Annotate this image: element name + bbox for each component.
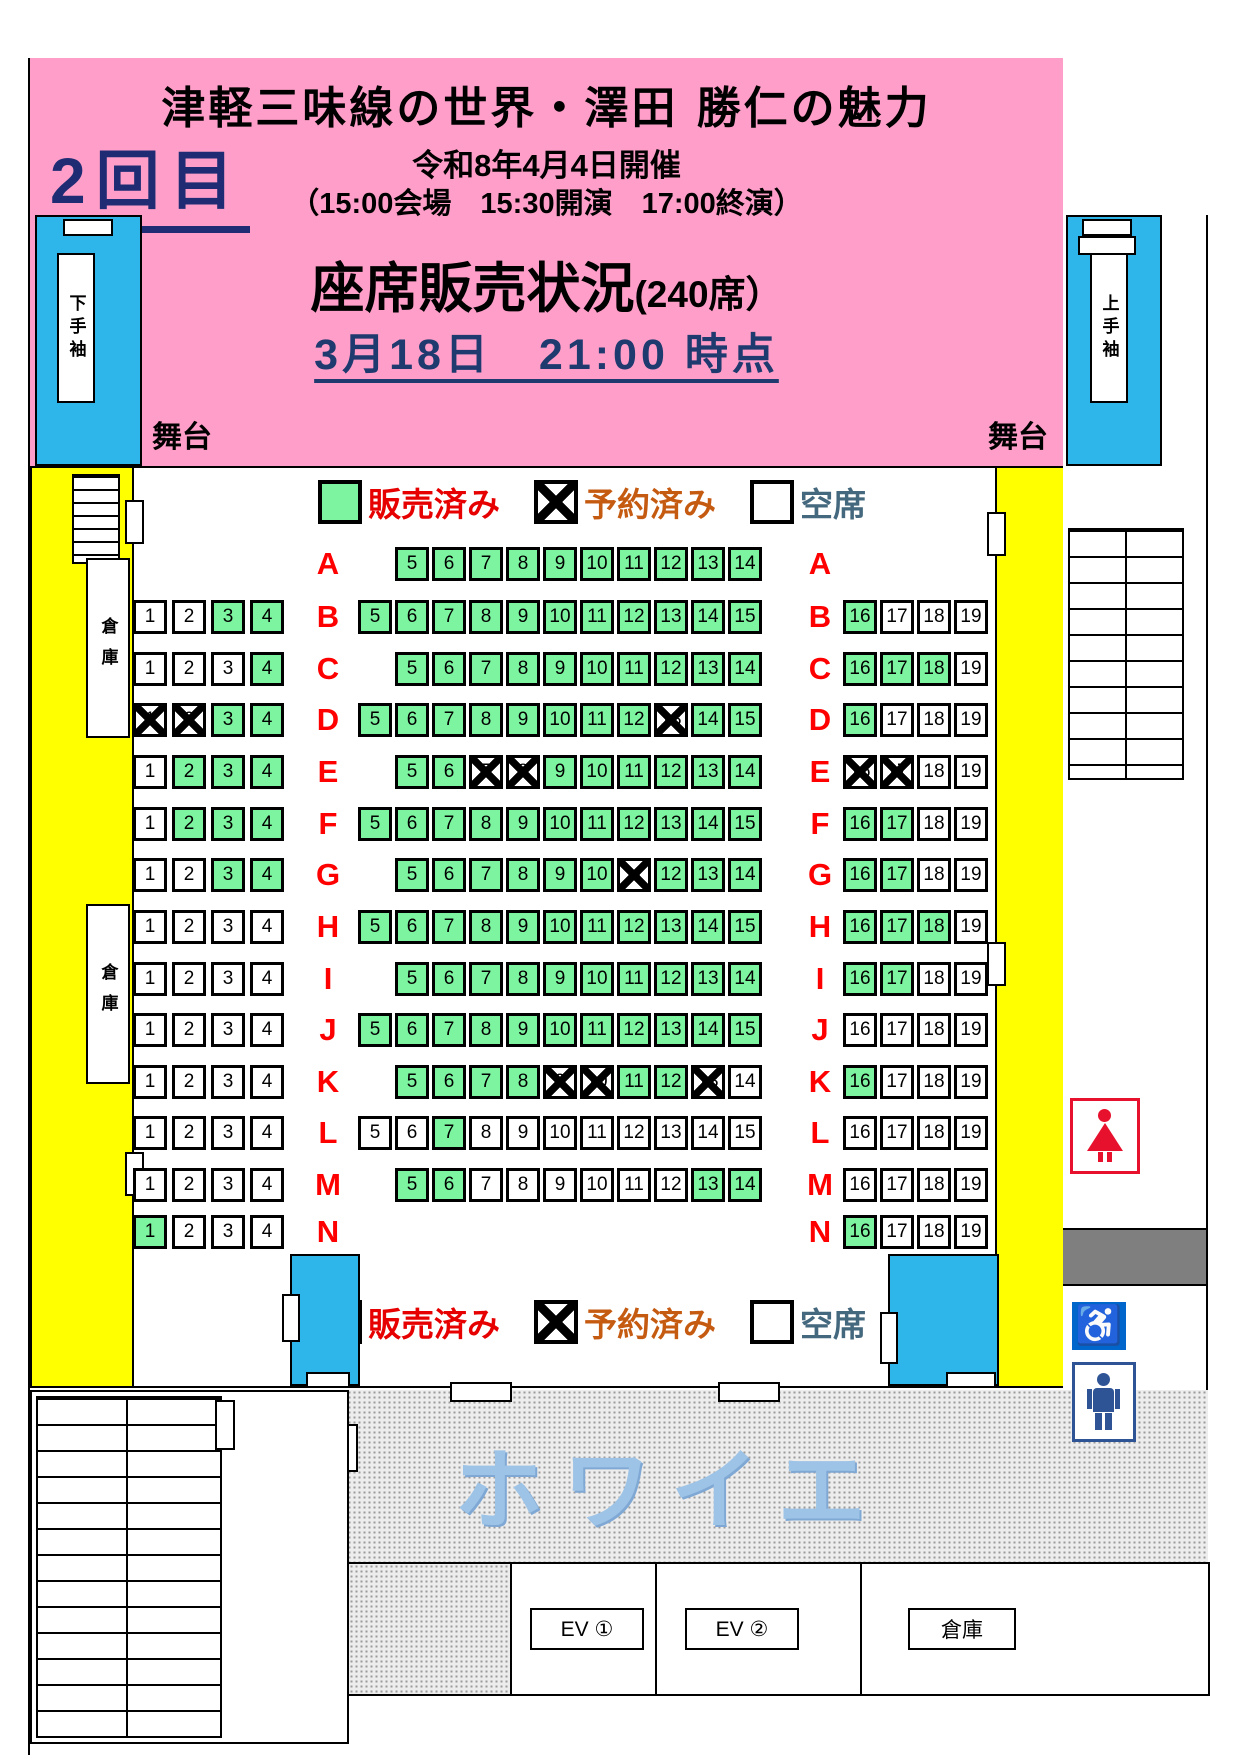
row-letter-H: H [802, 910, 838, 944]
empty-swatch [750, 480, 794, 524]
seat-L12: 12 [617, 1116, 651, 1150]
seat-L19: 19 [954, 1116, 988, 1150]
seat-K12: 12 [654, 1065, 688, 1099]
legend-item-sold: 販売済み [318, 478, 500, 526]
seat-B18: 18 [917, 600, 951, 634]
seat-K13: 13 [691, 1065, 725, 1099]
seat-L16: 16 [843, 1116, 877, 1150]
seat-J12: 12 [617, 1013, 651, 1047]
seat-I14: 14 [728, 962, 762, 996]
seat-N17: 17 [880, 1215, 914, 1249]
seat-K18: 18 [917, 1065, 951, 1099]
seat-C18: 18 [917, 652, 951, 686]
seat-E6: 6 [432, 755, 466, 789]
seat-F13: 13 [654, 807, 688, 841]
seat-J8: 8 [469, 1013, 503, 1047]
seat-H18: 18 [917, 910, 951, 944]
seat-J19: 19 [954, 1013, 988, 1047]
seat-F14: 14 [691, 807, 725, 841]
seat-B14: 14 [691, 600, 725, 634]
seat-L6: 6 [395, 1116, 429, 1150]
seat-F12: 12 [617, 807, 651, 841]
seat-C7: 7 [469, 652, 503, 686]
seat-H7: 7 [432, 910, 466, 944]
row-letter-A: A [802, 547, 838, 581]
row-letter-B: B [802, 600, 838, 634]
stage-label-left: 舞台 [152, 412, 212, 456]
seat-H19: 19 [954, 910, 988, 944]
seat-M8: 8 [506, 1168, 540, 1202]
sold-label: 販売済み [368, 1298, 500, 1346]
seat-L5: 5 [358, 1116, 392, 1150]
seat-E7: 7 [469, 755, 503, 789]
seat-C17: 17 [880, 652, 914, 686]
seat-E18: 18 [917, 755, 951, 789]
seat-L7: 7 [432, 1116, 466, 1150]
seat-block-N: 16171819 [843, 1215, 988, 1249]
seat-C5: 5 [395, 652, 429, 686]
seat-J4: 4 [250, 1013, 284, 1047]
seat-L4: 4 [250, 1116, 284, 1150]
row-letter-M: M [802, 1168, 838, 1202]
row-letter-K: K [310, 1065, 346, 1099]
seat-C8: 8 [506, 652, 540, 686]
seat-J7: 7 [432, 1013, 466, 1047]
seat-E8: 8 [506, 755, 540, 789]
seat-D3: 3 [211, 703, 245, 737]
seat-A9: 9 [543, 547, 577, 581]
seat-D16: 16 [843, 703, 877, 737]
seat-E3: 3 [211, 755, 245, 789]
seat-D4: 4 [250, 703, 284, 737]
seat-J1: 1 [133, 1013, 167, 1047]
empty-label: 空席 [800, 1298, 866, 1346]
seat-F6: 6 [395, 807, 429, 841]
rear-vestibule-left [290, 1254, 360, 1386]
seat-H1: 1 [133, 910, 167, 944]
seat-F19: 19 [954, 807, 988, 841]
wing-left-box: 下手袖 [35, 215, 142, 466]
seat-H15: 15 [728, 910, 762, 944]
vestibule-door [946, 1372, 996, 1388]
legend-top: 販売済み 予約済み 空席 [162, 478, 1022, 526]
seat-K4: 4 [250, 1065, 284, 1099]
reserved-swatch [534, 480, 578, 524]
header-panel: 津軽三味線の世界・澤田 勝仁の魅力 2回目 令和8年4月4日開催 （15:00会… [30, 58, 1063, 466]
seat-J13: 13 [654, 1013, 688, 1047]
seat-I8: 8 [506, 962, 540, 996]
seat-I1: 1 [133, 962, 167, 996]
seat-G7: 7 [469, 858, 503, 892]
event-date: 令和8年4月4日開催 [30, 140, 1063, 185]
seat-J11: 11 [580, 1013, 614, 1047]
seat-G10: 10 [580, 858, 614, 892]
seat-L14: 14 [691, 1116, 725, 1150]
stairs-upper-right [1068, 528, 1184, 780]
seat-M4: 4 [250, 1168, 284, 1202]
seat-B13: 13 [654, 600, 688, 634]
seat-G5: 5 [395, 858, 429, 892]
seat-J2: 2 [172, 1013, 206, 1047]
seat-L10: 10 [543, 1116, 577, 1150]
seat-block-A: 567891011121314 [395, 547, 762, 581]
row-letter-C: C [310, 652, 346, 686]
seat-B9: 9 [506, 600, 540, 634]
seat-C9: 9 [543, 652, 577, 686]
sold-label: 販売済み [368, 478, 500, 526]
seat-B11: 11 [580, 600, 614, 634]
event-title: 津軽三味線の世界・澤田 勝仁の魅力 [30, 72, 1063, 136]
seat-G3: 3 [211, 858, 245, 892]
seat-block-I: 1234 [133, 962, 284, 996]
seat-K11: 11 [617, 1065, 651, 1099]
seat-L9: 9 [506, 1116, 540, 1150]
seat-I16: 16 [843, 962, 877, 996]
wing-left-vent [63, 219, 113, 236]
seat-M9: 9 [543, 1168, 577, 1202]
seat-A14: 14 [728, 547, 762, 581]
row-letter-G: G [802, 858, 838, 892]
womens-restroom-sign [1070, 1098, 1140, 1174]
seat-G17: 17 [880, 858, 914, 892]
seat-H10: 10 [543, 910, 577, 944]
seat-H4: 4 [250, 910, 284, 944]
seat-D14: 14 [691, 703, 725, 737]
seat-B10: 10 [543, 600, 577, 634]
seat-I3: 3 [211, 962, 245, 996]
foyer-label: ホワイエ [430, 1420, 910, 1547]
seat-N1: 1 [133, 1215, 167, 1249]
seat-block-J: 16171819 [843, 1013, 988, 1047]
seat-M11: 11 [617, 1168, 651, 1202]
wing-left-label: 下手袖 [57, 253, 95, 403]
seat-H11: 11 [580, 910, 614, 944]
seat-K16: 16 [843, 1065, 877, 1099]
seat-block-J: 1234 [133, 1013, 284, 1047]
door-right-bottom [987, 942, 1006, 986]
row-letter-E: E [802, 755, 838, 789]
stairs-divider [126, 1398, 128, 1736]
ev1-cell: EV ① [510, 1562, 659, 1696]
row-letter-H: H [310, 910, 346, 944]
seat-I9: 9 [543, 962, 577, 996]
seat-I19: 19 [954, 962, 988, 996]
seat-F7: 7 [432, 807, 466, 841]
seat-block-C: 16171819 [843, 652, 988, 686]
reserved-swatch [534, 1300, 578, 1344]
seat-C13: 13 [691, 652, 725, 686]
wing-right-vent [1082, 219, 1132, 236]
seat-M19: 19 [954, 1168, 988, 1202]
seat-H13: 13 [654, 910, 688, 944]
seat-L2: 2 [172, 1116, 206, 1150]
mens-restroom-icon [1084, 1373, 1124, 1431]
seat-F17: 17 [880, 807, 914, 841]
seat-M6: 6 [432, 1168, 466, 1202]
seat-J6: 6 [395, 1013, 429, 1047]
seat-N4: 4 [250, 1215, 284, 1249]
seat-M3: 3 [211, 1168, 245, 1202]
seat-B6: 6 [395, 600, 429, 634]
seat-I11: 11 [617, 962, 651, 996]
seat-sales-poster: 津軽三味線の世界・澤田 勝仁の魅力 2回目 令和8年4月4日開催 （15:00会… [0, 0, 1241, 1755]
event-times: （15:00会場 15:30開演 17:00終演） [30, 180, 1063, 222]
seat-J16: 16 [843, 1013, 877, 1047]
seat-block-H: 16171819 [843, 910, 988, 944]
wheelchair-access-sign: ♿ [1072, 1302, 1126, 1350]
seat-block-K: 567891011121314 [395, 1065, 762, 1099]
seat-block-H: 56789101112131415 [358, 910, 762, 944]
seat-M18: 18 [917, 1168, 951, 1202]
seat-block-B: 16171819 [843, 600, 988, 634]
bottom-storage-label: 倉庫 [908, 1608, 1016, 1650]
seat-L13: 13 [654, 1116, 688, 1150]
seat-D19: 19 [954, 703, 988, 737]
womens-restroom-icon [1083, 1109, 1127, 1163]
storage-box-upper: 倉庫 [86, 558, 130, 738]
seat-block-F: 1234 [133, 807, 284, 841]
seat-G1: 1 [133, 858, 167, 892]
seat-D1: 1 [133, 703, 167, 737]
seat-C14: 14 [728, 652, 762, 686]
seat-H12: 12 [617, 910, 651, 944]
seat-block-M: 1234 [133, 1168, 284, 1202]
seat-N2: 2 [172, 1215, 206, 1249]
seat-F4: 4 [250, 807, 284, 841]
row-letter-M: M [310, 1168, 346, 1202]
seat-D18: 18 [917, 703, 951, 737]
seat-D8: 8 [469, 703, 503, 737]
seat-block-H: 1234 [133, 910, 284, 944]
ev1-label: EV ① [530, 1608, 644, 1650]
seat-block-L: 56789101112131415 [358, 1116, 762, 1150]
seat-E14: 14 [728, 755, 762, 789]
as-of-line: 3月18日 21:00 時点 [30, 320, 1063, 382]
seat-D2: 2 [172, 703, 206, 737]
seat-E10: 10 [580, 755, 614, 789]
seat-D12: 12 [617, 703, 651, 737]
legend-item-reserved: 予約済み [534, 478, 716, 526]
seat-B4: 4 [250, 600, 284, 634]
seat-B5: 5 [358, 600, 392, 634]
seat-I17: 17 [880, 962, 914, 996]
seat-K14: 14 [728, 1065, 762, 1099]
seat-C19: 19 [954, 652, 988, 686]
seat-B8: 8 [469, 600, 503, 634]
seat-H5: 5 [358, 910, 392, 944]
stairs-divider [1125, 530, 1127, 778]
seat-J18: 18 [917, 1013, 951, 1047]
seat-E4: 4 [250, 755, 284, 789]
seat-L15: 15 [728, 1116, 762, 1150]
seat-block-J: 56789101112131415 [358, 1013, 762, 1047]
seat-K8: 8 [506, 1065, 540, 1099]
seat-M5: 5 [395, 1168, 429, 1202]
seat-block-I: 567891011121314 [395, 962, 762, 996]
seat-A13: 13 [691, 547, 725, 581]
foyer-door [450, 1382, 512, 1402]
door-left-top [125, 500, 144, 544]
seat-J15: 15 [728, 1013, 762, 1047]
seat-M17: 17 [880, 1168, 914, 1202]
seat-J3: 3 [211, 1013, 245, 1047]
seat-A7: 7 [469, 547, 503, 581]
seat-I6: 6 [432, 962, 466, 996]
seat-M16: 16 [843, 1168, 877, 1202]
seat-D5: 5 [358, 703, 392, 737]
seat-I18: 18 [917, 962, 951, 996]
seat-N16: 16 [843, 1215, 877, 1249]
seat-F11: 11 [580, 807, 614, 841]
seat-E17: 17 [880, 755, 914, 789]
seat-E16: 16 [843, 755, 877, 789]
stairs-upper-left [72, 474, 120, 564]
seat-F2: 2 [172, 807, 206, 841]
seat-block-G: 1234 [133, 858, 284, 892]
seat-block-M: 16171819 [843, 1168, 988, 1202]
seat-block-N: 1234 [133, 1215, 284, 1249]
seat-A11: 11 [617, 547, 651, 581]
row-letter-I: I [802, 962, 838, 996]
seat-block-I: 16171819 [843, 962, 988, 996]
seat-D15: 15 [728, 703, 762, 737]
row-letter-L: L [310, 1116, 346, 1150]
seat-block-F: 56789101112131415 [358, 807, 762, 841]
row-letter-K: K [802, 1065, 838, 1099]
seat-K9: 9 [543, 1065, 577, 1099]
seat-block-C: 1234 [133, 652, 284, 686]
seat-N18: 18 [917, 1215, 951, 1249]
row-letter-G: G [310, 858, 346, 892]
seat-J14: 14 [691, 1013, 725, 1047]
seat-block-K: 16171819 [843, 1065, 988, 1099]
storage-cell: 倉庫 [860, 1562, 1210, 1696]
seat-B19: 19 [954, 600, 988, 634]
seat-D17: 17 [880, 703, 914, 737]
seat-G14: 14 [728, 858, 762, 892]
seat-F15: 15 [728, 807, 762, 841]
seat-block-G: 16171819 [843, 858, 988, 892]
seat-K6: 6 [432, 1065, 466, 1099]
vestibule-door [306, 1372, 350, 1388]
seat-J10: 10 [543, 1013, 577, 1047]
seat-F18: 18 [917, 807, 951, 841]
vestibule-door [880, 1312, 898, 1364]
seat-D9: 9 [506, 703, 540, 737]
seat-I5: 5 [395, 962, 429, 996]
wheelchair-icon: ♿ [1075, 1307, 1122, 1345]
seat-F1: 1 [133, 807, 167, 841]
seat-D11: 11 [580, 703, 614, 737]
seat-F3: 3 [211, 807, 245, 841]
row-letter-D: D [802, 703, 838, 737]
empty-swatch [750, 1300, 794, 1344]
lower-stairwell-area [30, 1390, 349, 1744]
seat-A5: 5 [395, 547, 429, 581]
seat-J5: 5 [358, 1013, 392, 1047]
seat-block-M: 567891011121314 [395, 1168, 762, 1202]
seat-block-L: 1234 [133, 1116, 284, 1150]
seat-A12: 12 [654, 547, 688, 581]
seat-H14: 14 [691, 910, 725, 944]
seat-H16: 16 [843, 910, 877, 944]
seat-G12: 12 [654, 858, 688, 892]
seat-C16: 16 [843, 652, 877, 686]
seat-I7: 7 [469, 962, 503, 996]
seat-F9: 9 [506, 807, 540, 841]
seat-M2: 2 [172, 1168, 206, 1202]
seat-block-D: 56789101112131415 [358, 703, 762, 737]
seat-K5: 5 [395, 1065, 429, 1099]
seat-E1: 1 [133, 755, 167, 789]
seat-A10: 10 [580, 547, 614, 581]
seat-B15: 15 [728, 600, 762, 634]
seat-G9: 9 [543, 858, 577, 892]
seat-B7: 7 [432, 600, 466, 634]
reserved-label: 予約済み [584, 478, 716, 526]
seat-C6: 6 [432, 652, 466, 686]
seat-E9: 9 [543, 755, 577, 789]
row-letter-A: A [310, 547, 346, 581]
seat-block-L: 16171819 [843, 1116, 988, 1150]
seat-C1: 1 [133, 652, 167, 686]
seat-F8: 8 [469, 807, 503, 841]
foyer-door [718, 1382, 780, 1402]
row-letter-C: C [802, 652, 838, 686]
seat-L18: 18 [917, 1116, 951, 1150]
seat-E19: 19 [954, 755, 988, 789]
row-letter-D: D [310, 703, 346, 737]
seat-H3: 3 [211, 910, 245, 944]
seat-E2: 2 [172, 755, 206, 789]
seat-G13: 13 [691, 858, 725, 892]
seat-E5: 5 [395, 755, 429, 789]
seat-M1: 1 [133, 1168, 167, 1202]
seat-M13: 13 [691, 1168, 725, 1202]
seat-block-E: 567891011121314 [395, 755, 762, 789]
seat-H9: 9 [506, 910, 540, 944]
seat-block-G: 567891011121314 [395, 858, 762, 892]
seat-M14: 14 [728, 1168, 762, 1202]
legend-item-empty: 空席 [750, 1298, 866, 1346]
seat-C12: 12 [654, 652, 688, 686]
row-letter-J: J [310, 1013, 346, 1047]
seat-L1: 1 [133, 1116, 167, 1150]
storage-box-lower: 倉庫 [86, 904, 130, 1084]
seat-block-D: 16171819 [843, 703, 988, 737]
stage-label-right: 舞台 [988, 412, 1048, 456]
seat-block-E: 1234 [133, 755, 284, 789]
seat-E12: 12 [654, 755, 688, 789]
seat-K3: 3 [211, 1065, 245, 1099]
seat-K17: 17 [880, 1065, 914, 1099]
row-letter-N: N [802, 1215, 838, 1249]
seat-M10: 10 [580, 1168, 614, 1202]
seat-A6: 6 [432, 547, 466, 581]
seat-H6: 6 [395, 910, 429, 944]
seat-block-D: 1234 [133, 703, 284, 737]
seat-L11: 11 [580, 1116, 614, 1150]
seat-L17: 17 [880, 1116, 914, 1150]
seat-C4: 4 [250, 652, 284, 686]
seat-L3: 3 [211, 1116, 245, 1150]
seat-M7: 7 [469, 1168, 503, 1202]
seat-F10: 10 [543, 807, 577, 841]
seat-G11: 11 [617, 858, 651, 892]
seat-C11: 11 [617, 652, 651, 686]
seat-K2: 2 [172, 1065, 206, 1099]
row-letter-F: F [310, 807, 346, 841]
